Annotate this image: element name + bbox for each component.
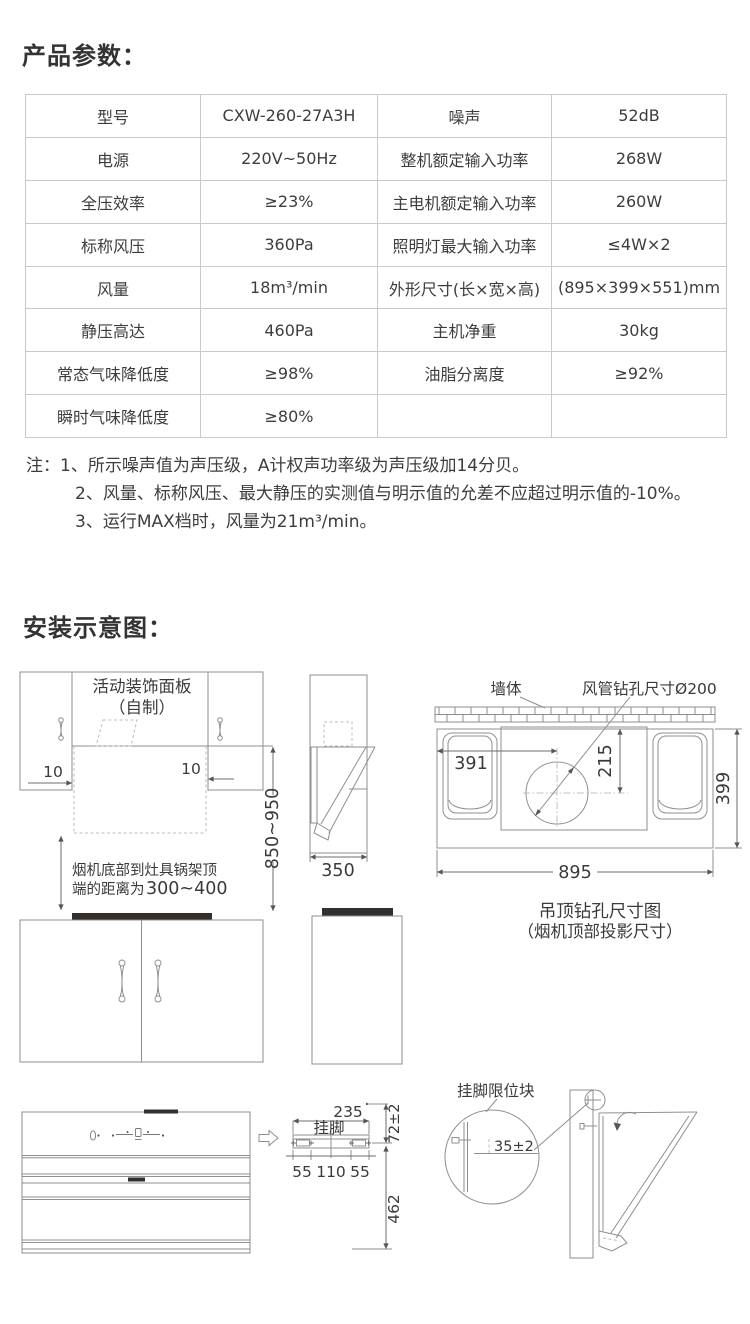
dim-55-right-label: 55 (350, 1163, 370, 1181)
brand-logo (128, 1178, 145, 1182)
product-spec-page: { "params_section": { "title": "产品参数：", … (0, 0, 750, 1324)
dim-215-label: 215 (596, 744, 616, 777)
table-cell: 静压高达 (26, 309, 201, 352)
table-cell: ≤4W×2 (552, 224, 727, 267)
duct-box (501, 727, 647, 830)
table-cell: 常态气味降低度 (26, 352, 201, 395)
table-cell: ≥23% (201, 181, 378, 224)
table-cell: 瞬时气味降低度 (26, 395, 201, 438)
table-cell: 主电机额定输入功率 (378, 181, 552, 224)
table-cell: 电源 (26, 138, 201, 181)
table-cell: 全压效率 (26, 181, 201, 224)
table-cell: 460Pa (201, 309, 378, 352)
dim-399-label: 399 (714, 772, 734, 805)
cooktop-bar (322, 908, 393, 916)
screw-icon (580, 1124, 584, 1130)
detail-callout-circle (445, 1110, 539, 1204)
table-cell: ≥98% (201, 352, 378, 395)
table-cell: 噪声 (378, 95, 552, 138)
table-cell: 外形尺寸(长×宽×高) (378, 267, 552, 310)
limit-block-label: 挂脚限位块 (457, 1082, 535, 1100)
distance-note-line1: 烟机底部到灶具锅架顶 (72, 862, 217, 879)
cabinet-handle (59, 718, 64, 741)
table-cell: ≥92% (552, 352, 727, 395)
dim-55-left-label: 55 (292, 1163, 312, 1181)
table-cell: (895×399×551)mm (552, 267, 727, 310)
notes: 注：1、所示噪声值为声压级，A计权声功率级为声压级加14分贝。 2、风量、标称风… (26, 452, 691, 536)
distance-value-label: 300~400 (146, 879, 227, 899)
hood-side-outline (599, 1112, 697, 1251)
install-section-title: 安装示意图： (23, 608, 173, 643)
duct-dashed-outline (324, 722, 352, 746)
spec-table: 型号 CXW-260-27A3H 噪声 52dB 电源 220V~50Hz 整机… (25, 94, 727, 438)
cabinet-handle (155, 960, 161, 1002)
brick-wall (435, 707, 715, 722)
bracket-detail-diagram: 235 挂脚 72±2 55 110 55 462 (286, 1103, 403, 1249)
cabinet-handle (119, 960, 125, 1002)
table-cell: 220V~50Hz (201, 138, 378, 181)
right-pocket (653, 733, 707, 819)
dim-462-label: 462 (385, 1194, 403, 1224)
table-cell: 360Pa (201, 224, 378, 267)
top-view-caption-line1: 吊顶钻孔尺寸图 (539, 902, 662, 922)
distance-note-line2: 端的距离为 (72, 881, 145, 898)
dim-72-label: 72±2 (387, 1104, 403, 1144)
install-diagram: 活动装饰面板 （自制） 10 10 850~950 烟机底部到灶具锅架顶 端的距… (0, 645, 750, 1324)
table-cell (552, 395, 727, 438)
duct-dashed-outline (96, 720, 137, 746)
top-vent-bar (144, 1110, 178, 1114)
cooktop-bar (72, 913, 212, 920)
hood-front-diagram (22, 1110, 278, 1254)
right-cabinet (208, 672, 263, 790)
table-cell: 260W (552, 181, 727, 224)
zoom-arrow-icon (259, 1131, 278, 1146)
params-section-title: 产品参数： (22, 36, 147, 71)
dim-391-label: 391 (454, 754, 487, 774)
table-cell: 18m³/min (201, 267, 378, 310)
height-range-label: 850~950 (263, 788, 283, 869)
dim-35-label: 35±2 (494, 1139, 534, 1155)
table-cell: 照明灯最大输入功率 (378, 224, 552, 267)
table-cell: 风量 (26, 267, 201, 310)
note-line: 3、运行MAX档时，风量为21m³/min。 (26, 508, 691, 536)
gap-right-label: 10 (181, 760, 201, 778)
table-cell: 52dB (552, 95, 727, 138)
table-cell: 268W (552, 138, 727, 181)
gap-left-label: 10 (43, 763, 63, 781)
table-cell: 标称风压 (26, 224, 201, 267)
wall-panel (310, 675, 367, 853)
table-cell: CXW-260-27A3H (201, 95, 378, 138)
dim-110-label: 110 (316, 1163, 346, 1181)
panel-label-line2: （自制） (109, 698, 175, 717)
hood-side-outline (311, 747, 375, 840)
wall-label: 墙体 (490, 680, 522, 698)
note-line: 2、风量、标称风压、最大静压的实测值与明示值的允差不应超过明示值的-10%。 (26, 480, 691, 508)
panel-label-line1: 活动装饰面板 (93, 677, 192, 696)
front-view-diagram: 活动装饰面板 （自制） 10 10 850~950 烟机底部到灶具锅架顶 端的距… (20, 672, 283, 1062)
cabinet-handle (218, 718, 223, 741)
table-cell: 型号 (26, 95, 201, 138)
dim-895-label: 895 (558, 863, 591, 883)
top-view-caption-line2: （烟机顶部投影尺寸） (518, 922, 683, 941)
table-cell: ≥80% (201, 395, 378, 438)
screw-icon (452, 1138, 459, 1144)
bracket-label: 挂脚 (313, 1119, 344, 1137)
table-cell: 30kg (552, 309, 727, 352)
table-cell: 主机净重 (378, 309, 552, 352)
table-cell: 油脂分离度 (378, 352, 552, 395)
left-pocket (443, 733, 497, 819)
duct-hole-label: 风管钻孔尺寸Ø200 (582, 680, 717, 698)
table-cell (378, 395, 552, 438)
control-panel-icons (90, 1129, 164, 1141)
table-cell: 整机额定输入功率 (378, 138, 552, 181)
side-view-diagram: 350 (310, 675, 402, 1064)
depth-label: 350 (321, 861, 354, 881)
limit-block-detail-diagram: 挂脚限位块 35±2 (445, 1082, 697, 1258)
counter (312, 916, 402, 1064)
note-line: 注：1、所示噪声值为声压级，A计权声功率级为声压级加14分贝。 (26, 452, 691, 480)
top-view-diagram: 墙体 风管钻孔尺寸Ø200 391 215 399 89 (435, 680, 742, 941)
